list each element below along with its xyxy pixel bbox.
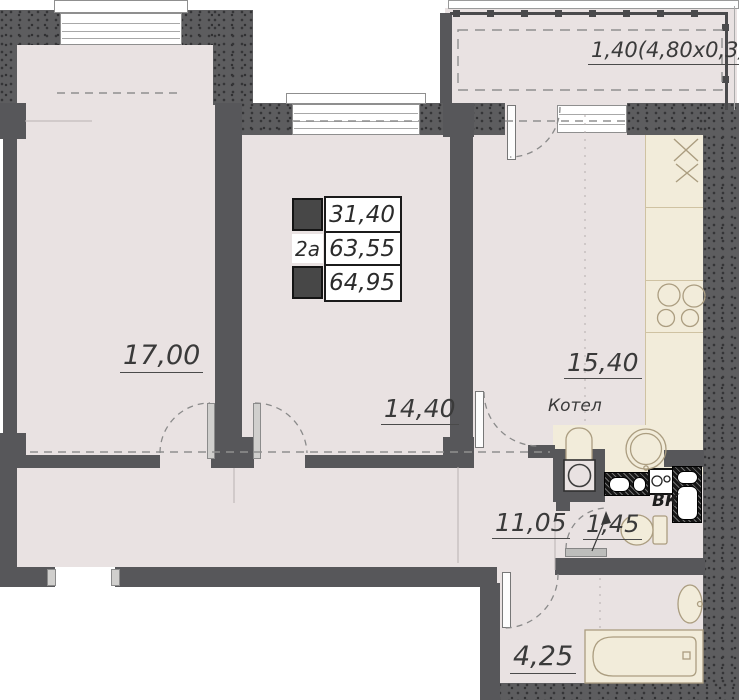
wall-segment — [3, 138, 17, 438]
wall-segment — [420, 103, 445, 135]
room-area-label-living: 17,00 — [120, 342, 203, 373]
wall-segment — [3, 455, 160, 468]
railing-post — [487, 10, 494, 17]
legend-area-row: 63,55 — [324, 231, 402, 267]
wall-segment — [471, 103, 505, 135]
railing-post — [722, 76, 729, 83]
kitchen-door-leaf — [475, 391, 484, 448]
floor-living-room — [10, 40, 232, 470]
wall-partition-living-bedroom — [215, 103, 242, 438]
wall-column — [443, 437, 474, 468]
window-sill — [54, 0, 188, 13]
water-duct-label: ВК — [652, 493, 679, 510]
railing-post — [691, 10, 698, 17]
window-frame-line — [62, 31, 180, 32]
legend-area-row: 64,95 — [324, 264, 402, 302]
window-frame-line — [559, 114, 625, 115]
railing-post — [657, 10, 664, 17]
window-frame-line — [559, 124, 625, 125]
wall-segment — [480, 583, 500, 700]
wall-segment — [664, 450, 704, 467]
wall-wc-bottom — [555, 558, 705, 575]
window-living-room — [60, 13, 182, 45]
wall-right-outer — [703, 103, 739, 700]
window-frame-line — [294, 128, 418, 129]
legend-square-bottom — [292, 266, 323, 299]
wall-segment — [115, 567, 497, 587]
room-area-label-hall: 11,05 — [492, 510, 570, 539]
door-jamb — [253, 403, 261, 459]
window-bedroom — [292, 104, 420, 135]
railing-post — [453, 10, 460, 17]
vent-slot — [633, 477, 646, 492]
room-area-label-wc: 1,45 — [583, 512, 642, 540]
vent-slot — [677, 486, 698, 520]
wall-stub — [528, 445, 555, 458]
room-area-label-bedroom: 14,40 — [381, 396, 459, 425]
wall-bottom-outer — [480, 683, 739, 700]
bathroom-door-leaf — [502, 572, 511, 628]
floor-plan: 17,00 14,40 15,40 11,05 1,45 4,25 1,40(4… — [0, 0, 739, 700]
wc-door-leaf — [565, 548, 607, 557]
counter-divider — [646, 207, 703, 208]
kitchen-counter — [645, 135, 703, 428]
boiler-unit-block — [553, 449, 605, 502]
window-frame-line — [294, 113, 418, 114]
entry-door-jamb — [111, 569, 120, 586]
room-area-label-balcony: 1,40(4,80x0,3) — [588, 40, 739, 65]
railing-post — [722, 24, 729, 31]
door-jamb — [207, 403, 215, 459]
wall-segment — [213, 10, 253, 105]
window-sill — [286, 93, 426, 104]
legend-area-row: 31,40 — [324, 196, 402, 234]
wall-segment — [0, 103, 26, 139]
railing-post — [589, 10, 596, 17]
balcony-pier — [440, 13, 452, 103]
vent-slot — [609, 477, 630, 492]
wall-column — [211, 437, 254, 468]
room-area-label-kitchen: 15,40 — [564, 350, 642, 379]
railing-post — [555, 10, 562, 17]
wall-segment — [0, 10, 17, 106]
legend-unit-cell: 2a — [292, 234, 323, 263]
room-area-label-bath: 4,25 — [510, 643, 576, 674]
balcony-door-leaf — [507, 105, 516, 160]
legend-square-top — [292, 198, 323, 231]
floor-bathroom — [490, 555, 705, 695]
railing-post — [623, 10, 630, 17]
vent-duct-horizontal — [604, 472, 650, 496]
boiler-label: Котел — [548, 398, 602, 415]
entry-door-jamb — [47, 569, 56, 586]
railing-post — [521, 10, 528, 17]
window-frame-line — [62, 38, 180, 39]
balcony-slab-edge — [448, 0, 739, 9]
window-frame-line — [294, 121, 418, 122]
window-frame-line — [62, 23, 180, 24]
legend-table: 2a 31,40 63,55 64,95 — [291, 196, 403, 302]
wall-column — [443, 103, 474, 137]
wall-segment — [305, 455, 445, 468]
counter-divider — [646, 280, 703, 281]
vent-slot — [677, 471, 698, 484]
counter-divider — [646, 332, 703, 333]
window-kitchen — [557, 105, 627, 133]
legend-unit-label: 2a — [295, 237, 320, 261]
